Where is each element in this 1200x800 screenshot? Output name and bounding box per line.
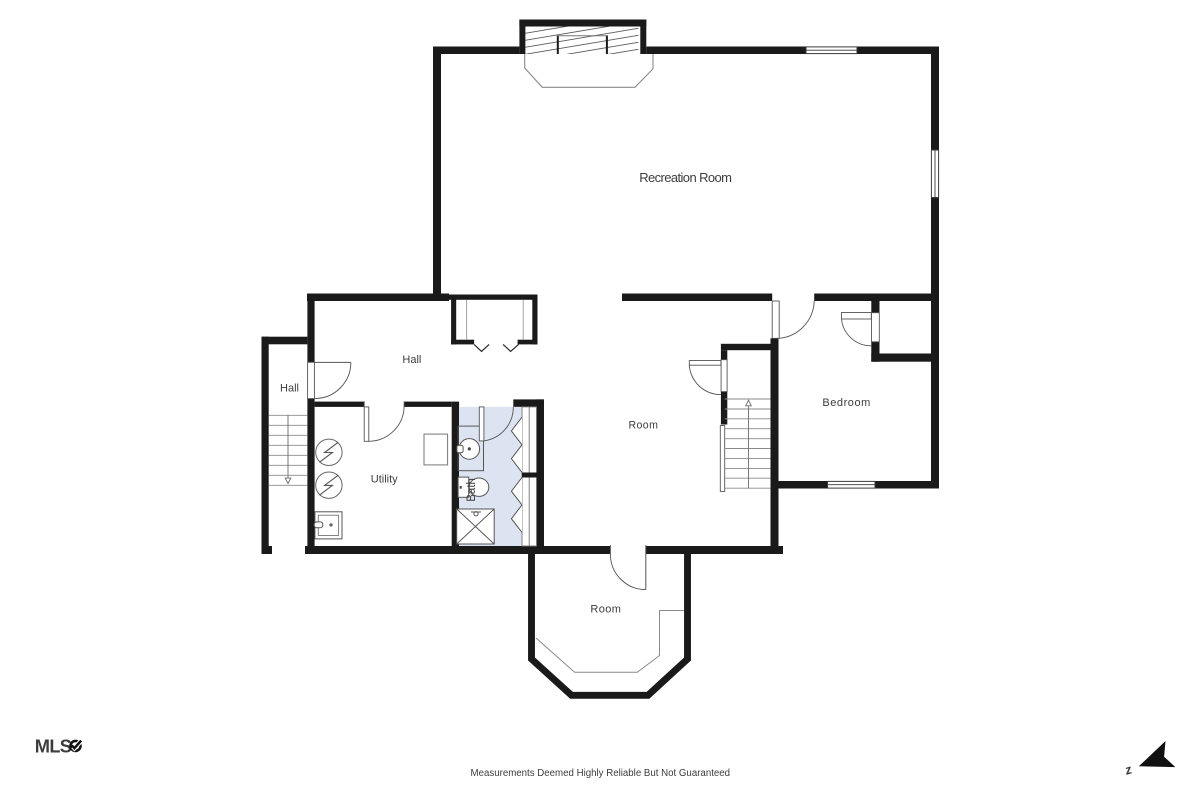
svg-text:MLS: MLS [35, 736, 72, 757]
svg-text:Hall: Hall [402, 354, 421, 366]
svg-text:Bedroom: Bedroom [822, 397, 870, 409]
svg-text:Hall: Hall [280, 383, 299, 395]
svg-text:z: z [1122, 761, 1134, 778]
svg-text:Room: Room [590, 604, 621, 616]
svg-text:Bath: Bath [466, 478, 478, 502]
svg-text:Recreation Room: Recreation Room [639, 170, 731, 185]
svg-text:Utility: Utility [371, 473, 398, 485]
svg-text:Measurements Deemed Highly Rel: Measurements Deemed Highly Reliable But … [471, 768, 731, 779]
svg-text:Room: Room [628, 420, 658, 432]
